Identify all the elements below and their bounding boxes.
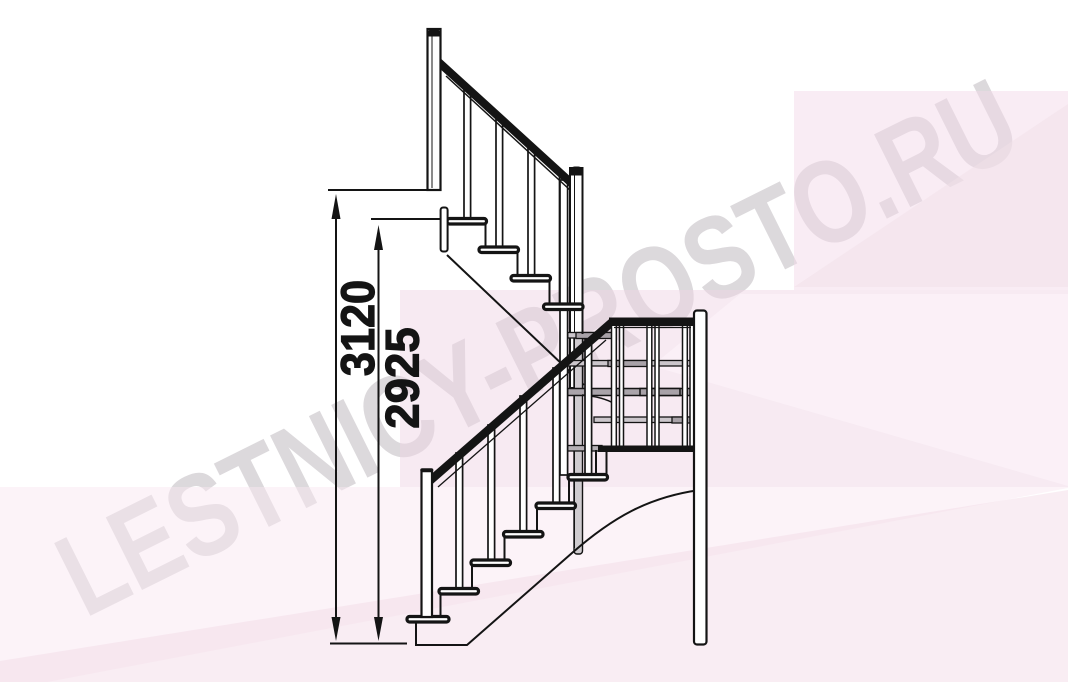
svg-text:2925: 2925 (376, 327, 429, 428)
